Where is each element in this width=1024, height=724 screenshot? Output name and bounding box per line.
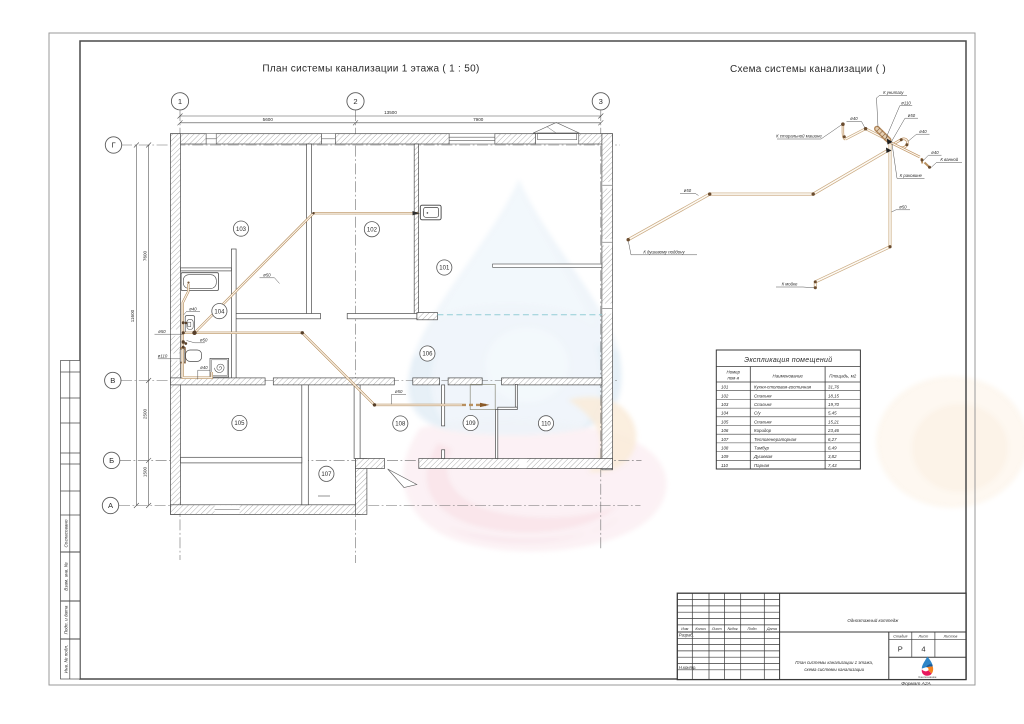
svg-text:108: 108 [395, 422, 406, 428]
svg-text:ø50: ø50 [908, 113, 916, 118]
svg-text:№док: №док [728, 627, 738, 631]
svg-text:Подп.: Подп. [747, 627, 757, 631]
svg-text:схема системы канализации: схема системы канализации [804, 667, 864, 672]
svg-text:109: 109 [466, 421, 477, 427]
svg-text:6,27: 6,27 [828, 437, 837, 442]
svg-text:К раковине: К раковине [900, 173, 923, 178]
svg-text:103: 103 [236, 227, 247, 233]
svg-text:Схема системы канализации ( ): Схема системы канализации ( ) [730, 64, 886, 75]
svg-text:Формат А2А: Формат А2А [901, 681, 930, 687]
svg-text:107: 107 [721, 437, 729, 442]
svg-text:ø40: ø40 [919, 129, 927, 134]
svg-text:Согласовано: Согласовано [64, 519, 69, 547]
svg-text:7600: 7600 [142, 250, 147, 261]
svg-text:Душевая: Душевая [753, 454, 773, 459]
svg-text:ø40: ø40 [189, 306, 197, 311]
svg-text:106: 106 [721, 428, 729, 433]
svg-text:105: 105 [721, 419, 729, 424]
svg-text:Тамбур: Тамбур [754, 446, 770, 451]
svg-text:ø50: ø50 [200, 337, 208, 342]
svg-text:К стиральной машине: К стиральной машине [776, 134, 822, 139]
svg-text:С/у: С/у [754, 411, 761, 416]
svg-text:Взам. инв. №: Взам. инв. № [64, 562, 69, 590]
svg-text:104: 104 [214, 309, 225, 315]
svg-text:Спальня: Спальня [754, 402, 772, 407]
svg-text:Разраб.: Разраб. [679, 633, 694, 638]
svg-text:4: 4 [921, 645, 925, 654]
svg-text:пом-я: пом-я [727, 376, 739, 381]
svg-text:1: 1 [178, 97, 182, 106]
svg-text:Стадия: Стадия [893, 634, 907, 638]
svg-text:Изм: Изм [681, 627, 688, 631]
svg-text:ø40: ø40 [200, 365, 208, 370]
svg-text:101: 101 [439, 266, 450, 272]
svg-text:102: 102 [367, 227, 378, 233]
svg-text:ø50: ø50 [395, 389, 403, 394]
svg-text:2: 2 [353, 97, 357, 106]
svg-text:В: В [110, 376, 115, 385]
svg-text:Лист: Лист [918, 634, 929, 638]
svg-text:К мойке: К мойке [782, 282, 798, 287]
svg-text:Дата: Дата [766, 627, 777, 631]
svg-text:К душевому поддону: К душевому поддону [643, 249, 685, 254]
svg-text:Г: Г [111, 141, 115, 150]
svg-text:6,49: 6,49 [828, 446, 837, 451]
svg-text:31,76: 31,76 [828, 385, 840, 390]
svg-text:105: 105 [234, 421, 245, 427]
svg-text:План системы канализации 1 эта: План системы канализации 1 этажа, [795, 660, 873, 665]
svg-text:ø40: ø40 [931, 150, 939, 155]
svg-text:13500: 13500 [384, 110, 397, 115]
svg-text:11600: 11600 [130, 309, 135, 322]
svg-text:110: 110 [541, 422, 551, 428]
svg-text:Парная: Парная [754, 463, 770, 468]
svg-text:Н.контр.: Н.контр. [679, 665, 697, 670]
svg-text:103: 103 [721, 402, 729, 407]
svg-text:101: 101 [721, 385, 729, 390]
svg-text:Сантехником: Сантехником [918, 675, 936, 679]
svg-text:3,82: 3,82 [828, 454, 837, 459]
svg-text:Колич: Колич [695, 627, 706, 631]
svg-text:Площадь, м2: Площадь, м2 [829, 374, 857, 379]
svg-text:109: 109 [721, 454, 729, 459]
svg-text:19,70: 19,70 [828, 402, 840, 407]
svg-text:Подп. и дата: Подп. и дата [64, 605, 69, 634]
svg-text:К унитазу: К унитазу [883, 90, 904, 95]
svg-text:Экспликация помещений: Экспликация помещений [744, 356, 832, 364]
svg-text:ø50: ø50 [899, 205, 907, 210]
svg-text:ø40: ø40 [850, 116, 858, 121]
svg-text:Коридор: Коридор [754, 428, 772, 433]
svg-text:Инв. № подл.: Инв. № подл. [64, 645, 69, 674]
svg-text:ø110: ø110 [158, 353, 168, 358]
svg-text:ø50: ø50 [263, 273, 271, 278]
svg-text:23,46: 23,46 [827, 428, 840, 433]
svg-text:Р: Р [898, 645, 903, 654]
svg-text:15,21: 15,21 [828, 419, 840, 424]
svg-text:Лист: Лист [711, 627, 722, 631]
svg-text:К ванной: К ванной [940, 157, 958, 162]
svg-text:План системы канализации 1 эта: План системы канализации 1 этажа ( 1 : 5… [262, 63, 479, 74]
svg-text:Листов: Листов [943, 634, 958, 638]
svg-text:102: 102 [721, 393, 729, 398]
svg-text:Одноэтажный коттедж: Одноэтажный коттедж [847, 618, 899, 623]
svg-text:5600: 5600 [263, 117, 274, 122]
svg-text:Б: Б [109, 456, 114, 465]
svg-text:108: 108 [721, 446, 729, 451]
svg-text:106: 106 [422, 352, 433, 358]
svg-text:3: 3 [599, 97, 603, 106]
svg-text:Спальня: Спальня [754, 393, 772, 398]
svg-text:ø50: ø50 [158, 329, 166, 334]
svg-text:7900: 7900 [473, 117, 484, 122]
svg-text:18,15: 18,15 [828, 393, 840, 398]
svg-text:104: 104 [721, 411, 729, 416]
svg-text:ø110: ø110 [901, 100, 911, 105]
svg-text:ø50: ø50 [684, 188, 692, 193]
svg-text:5,45: 5,45 [828, 411, 837, 416]
svg-text:1500: 1500 [142, 466, 147, 477]
svg-text:Наименование: Наименование [773, 374, 804, 379]
svg-text:7,43: 7,43 [828, 463, 837, 468]
svg-text:Теплогенераторная: Теплогенераторная [754, 437, 797, 442]
svg-text:107: 107 [321, 472, 332, 478]
svg-text:2500: 2500 [142, 408, 147, 419]
svg-text:Номер: Номер [727, 369, 741, 374]
svg-text:110: 110 [721, 463, 729, 468]
svg-text:Кухня-столовая-гостинная: Кухня-столовая-гостинная [754, 385, 812, 390]
svg-text:Спальня: Спальня [754, 419, 772, 424]
